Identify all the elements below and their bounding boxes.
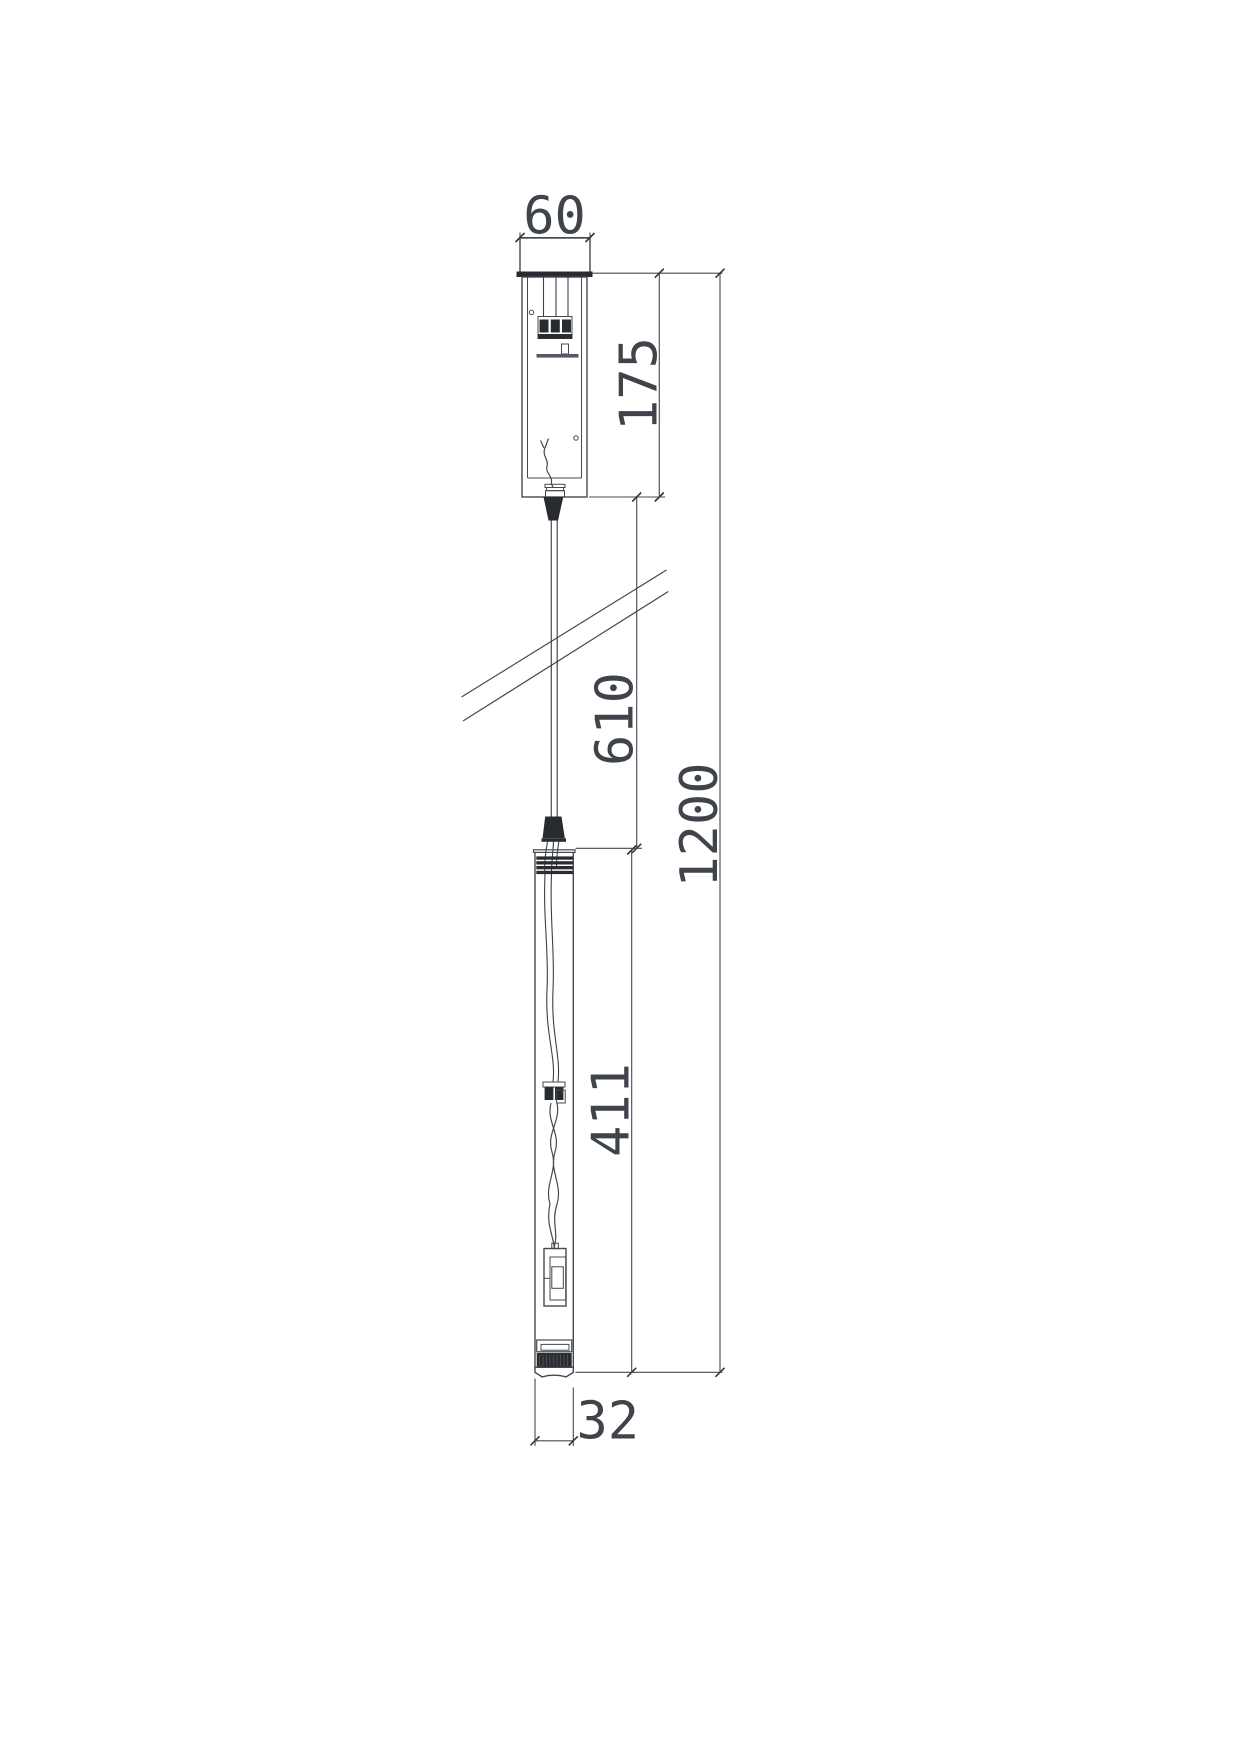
gland-nut bbox=[546, 491, 565, 497]
cable-gland-upper bbox=[544, 484, 566, 520]
light-tube bbox=[534, 817, 576, 1377]
module-window bbox=[552, 1267, 564, 1289]
canopy-flange bbox=[517, 272, 593, 278]
suspension-cable bbox=[551, 521, 557, 818]
rib-stripe-4 bbox=[536, 871, 573, 874]
connector-top-bar bbox=[543, 1082, 565, 1087]
cable-gland-lower bbox=[543, 817, 565, 839]
rib-stripe-1 bbox=[536, 856, 573, 859]
interior-wire-a bbox=[545, 874, 554, 1082]
tube-top-rim bbox=[534, 850, 576, 853]
terminal-1 bbox=[540, 320, 549, 333]
dim-label-overall-length: 1200 bbox=[670, 762, 730, 887]
diffuser-inner bbox=[541, 1344, 569, 1350]
bracket-bar bbox=[537, 354, 579, 358]
dim-label-cable-length: 610 bbox=[586, 672, 646, 766]
dimension-610: 610 bbox=[576, 493, 646, 853]
screw-hole-upper bbox=[529, 310, 533, 314]
dim-label-tube-length: 411 bbox=[582, 1063, 642, 1157]
terminal-2 bbox=[551, 320, 560, 333]
dim-label-canopy-height: 175 bbox=[610, 337, 670, 431]
rib-stripe-2 bbox=[536, 861, 573, 864]
tube-bottom-assembly bbox=[535, 1340, 573, 1377]
dimension-drawing: 60 175 610 411 1200 32 bbox=[0, 0, 1241, 1754]
gland-lower-flange bbox=[542, 838, 567, 842]
dimension-1200: 1200 bbox=[670, 269, 730, 1377]
wire-fork bbox=[541, 439, 549, 449]
connector-block-left bbox=[545, 1087, 554, 1100]
screw-hole-lower bbox=[574, 436, 578, 440]
mid-connector bbox=[543, 1082, 565, 1103]
ceiling-canopy bbox=[517, 238, 593, 521]
dimension-60: 60 bbox=[516, 187, 595, 247]
led-block bbox=[537, 1353, 572, 1367]
rib-stripe-3 bbox=[536, 866, 573, 869]
bottom-cap bbox=[535, 1367, 573, 1377]
dim-label-tube-diameter: 32 bbox=[577, 1392, 640, 1452]
terminal-block bbox=[538, 317, 572, 339]
drawing-sheet: 60 175 610 411 1200 32 bbox=[0, 0, 1241, 1754]
gland-cone bbox=[544, 497, 564, 521]
dim-label-canopy-width: 60 bbox=[523, 187, 586, 247]
dimension-175: 175 bbox=[589, 269, 670, 502]
driver-module bbox=[544, 1243, 566, 1306]
canopy-exit-wire bbox=[544, 448, 553, 488]
terminal-3 bbox=[562, 320, 571, 333]
bracket-post bbox=[562, 344, 569, 354]
dimension-411: 411 bbox=[582, 846, 642, 1377]
interior-wire-b bbox=[551, 874, 559, 1082]
terminal-rail bbox=[538, 334, 572, 339]
dimension-32: 32 bbox=[531, 1379, 640, 1452]
